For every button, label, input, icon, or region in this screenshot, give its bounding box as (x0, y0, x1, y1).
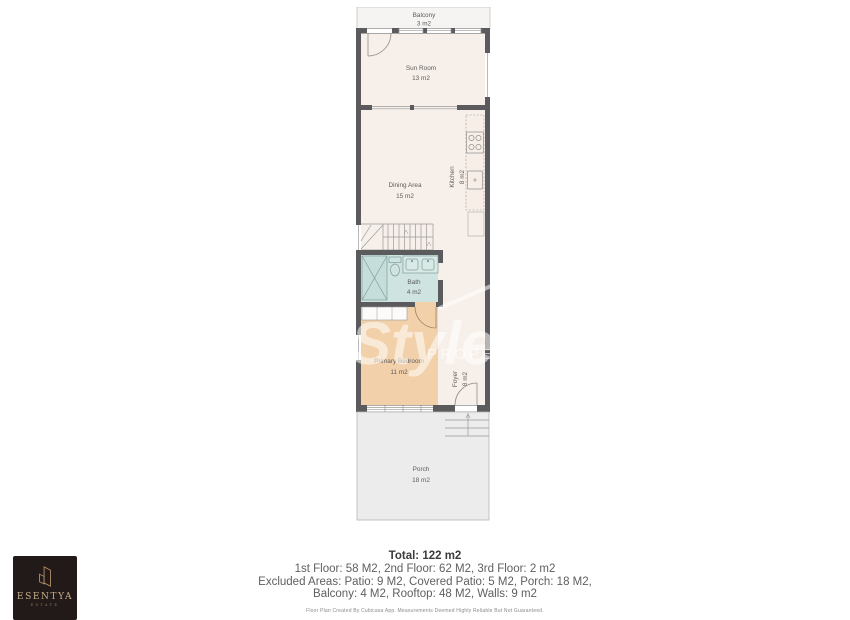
building-icon (34, 564, 56, 590)
room-bath: Bath 4 m2 (361, 255, 438, 302)
watermark-script: Style (355, 310, 494, 377)
brand-name: ESENTYA (17, 592, 73, 602)
room-porch: Porch 18 m2 (357, 412, 489, 520)
kitchen-area: 8 m2 (459, 169, 466, 184)
floor-plan: Balcony 3 m2 (355, 7, 517, 521)
sun-room-label: Sun Room (406, 65, 436, 72)
room-balcony: Balcony 3 m2 (357, 7, 490, 29)
bath-label: Bath (407, 279, 421, 286)
brand-subtitle: ESTATE (31, 603, 60, 607)
balcony-label: Balcony (413, 12, 437, 19)
sun-room-area: 13 m2 (412, 75, 430, 82)
right-wall-window (485, 53, 490, 97)
floor-plan-drawing: Balcony 3 m2 (355, 7, 517, 521)
kitchen-counter (466, 115, 484, 210)
porch-area: 18 m2 (412, 477, 430, 484)
dining-area: 15 m2 (396, 193, 414, 200)
brand-logo: ESENTYA ESTATE (13, 556, 77, 620)
summary: Total: 122 m2 1st Floor: 58 M2, 2nd Floo… (0, 549, 850, 614)
bedroom-door-opening (415, 302, 436, 307)
page: Balcony 3 m2 (0, 0, 850, 620)
dining-label: Dining Area (388, 182, 421, 189)
balcony-area: 3 m2 (417, 21, 432, 28)
vanity-fixture (403, 256, 438, 273)
shower-fixture (362, 256, 387, 300)
summary-floors: 1st Floor: 58 M2, 2nd Floor: 62 M2, 3rd … (0, 563, 850, 576)
summary-excluded-1: Excluded Areas: Patio: 9 M2, Covered Pat… (0, 576, 850, 589)
kitchen-label: Kitchen (449, 166, 456, 188)
bath-door-opening (438, 263, 443, 280)
summary-excluded-2: Balcony: 4 M2, Rooftop: 48 M2, Walls: 9 … (0, 588, 850, 601)
summary-total: Total: 122 m2 (0, 549, 850, 563)
porch-label: Porch (413, 466, 430, 473)
bath-area: 4 m2 (407, 289, 422, 296)
stove-fixture (467, 132, 484, 153)
summary-disclaimer: Floor Plan Created By Cubicasa App. Meas… (0, 608, 850, 614)
